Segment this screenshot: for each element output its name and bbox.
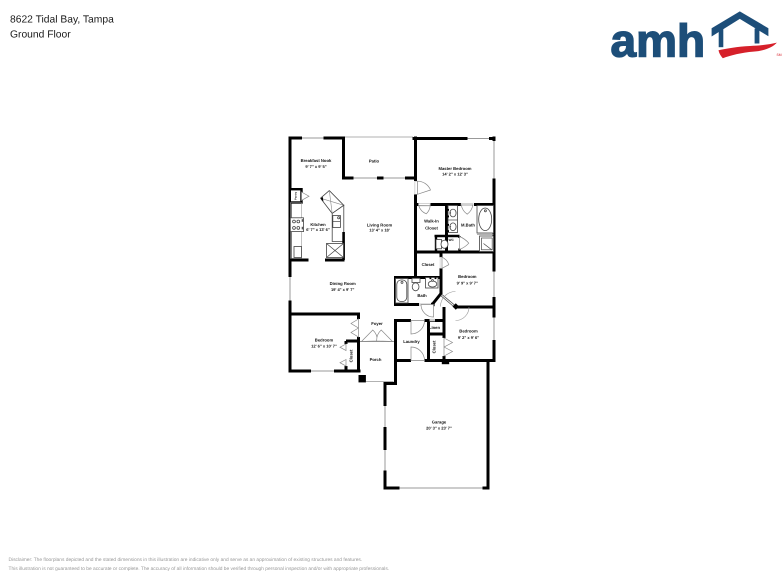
svg-text:Dining Room: Dining Room: [330, 281, 356, 286]
svg-text:9' 7" x 9' 5": 9' 7" x 9' 5": [305, 164, 326, 169]
svg-text:Ground Floor: Ground Floor: [10, 30, 71, 41]
svg-text:amh: amh: [611, 15, 706, 67]
svg-text:Bath: Bath: [417, 293, 427, 298]
svg-text:Walk-In: Walk-In: [424, 219, 439, 224]
svg-text:Closet: Closet: [425, 226, 438, 231]
svg-text:Pantry: Pantry: [295, 191, 298, 200]
svg-text:Bedroom: Bedroom: [458, 274, 477, 279]
svg-text:Breakfast Nook: Breakfast Nook: [301, 158, 332, 163]
svg-text:Closet: Closet: [422, 262, 435, 267]
svg-text:Garage: Garage: [432, 419, 447, 424]
svg-text:Foyer: Foyer: [371, 321, 383, 326]
svg-text:Linen: Linen: [429, 325, 441, 330]
svg-text:Patio: Patio: [369, 159, 380, 164]
svg-text:Closet: Closet: [432, 340, 437, 353]
svg-text:SM: SM: [777, 53, 782, 57]
svg-text:This illustration is not guara: This illustration is not guaranteed to b…: [9, 566, 390, 572]
svg-text:13' 4" x 18': 13' 4" x 18': [369, 227, 390, 232]
svg-text:Bedroom: Bedroom: [315, 338, 334, 343]
svg-text:Bedroom: Bedroom: [459, 329, 478, 334]
svg-text:9' 9" x 9' 7": 9' 9" x 9' 7": [457, 280, 478, 285]
svg-text:20' 3" x 23' 7": 20' 3" x 23' 7": [426, 425, 452, 430]
svg-text:Porch: Porch: [370, 357, 382, 362]
svg-text:19' 4" x 9' 7": 19' 4" x 9' 7": [331, 287, 355, 292]
svg-text:M.Bath: M.Bath: [461, 223, 475, 228]
svg-text:6' 7" x 13' 6": 6' 7" x 13' 6": [306, 227, 330, 232]
svg-text:Laundry: Laundry: [403, 339, 420, 344]
svg-text:WC: WC: [449, 238, 455, 242]
svg-text:Closet: Closet: [349, 349, 354, 362]
svg-text:Master Bedroom: Master Bedroom: [438, 166, 471, 171]
svg-text:Disclaimer: The floorplans dep: Disclaimer: The floorplans depicted and …: [9, 557, 363, 563]
svg-text:14' 2" x 12' 3": 14' 2" x 12' 3": [442, 172, 468, 177]
svg-text:8622 Tidal Bay, Tampa: 8622 Tidal Bay, Tampa: [10, 15, 114, 26]
svg-text:9' 2" x 9' 6": 9' 2" x 9' 6": [458, 335, 479, 340]
svg-text:12' 6" x 10' 7": 12' 6" x 10' 7": [311, 343, 337, 348]
